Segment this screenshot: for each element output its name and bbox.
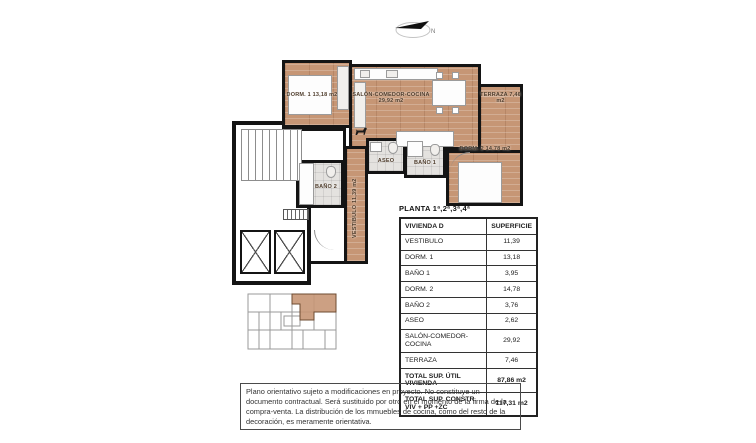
table-row: DORM. 113,18 (400, 250, 537, 266)
label-aseo: ASEO (368, 158, 404, 164)
room-name: VESTIBULO (400, 234, 487, 250)
surface-value: 14,78 (487, 282, 537, 298)
vent-grill (283, 209, 309, 220)
key-plan (240, 288, 344, 356)
table-row: TERRAZA7,46 (400, 353, 537, 369)
room-name: BAÑO 2 (400, 298, 487, 314)
elevator-1 (240, 230, 271, 274)
label-dorm2: DORM. 2 14,78 m2 (450, 146, 520, 152)
toilet-bano2 (326, 166, 336, 178)
north-letter: N (431, 29, 435, 35)
label-vestibulo: VESTIBULO 11,39 m2 (352, 178, 358, 238)
table-row: BAÑO 13,95 (400, 266, 537, 282)
chair (436, 107, 443, 114)
washbasin-aseo (370, 142, 382, 152)
table-row: DORM. 214,78 (400, 282, 537, 298)
wardrobe-dorm1 (337, 66, 349, 110)
room-name: DORM. 2 (400, 282, 487, 298)
dog-icon (354, 124, 368, 136)
stairs (241, 129, 302, 181)
page: N DORM. (0, 0, 756, 443)
chair (452, 72, 459, 79)
room-name: DORM. 1 (400, 250, 487, 266)
sofa (396, 131, 454, 147)
label-bano1: BAÑO 1 (407, 160, 443, 166)
toilet-aseo (388, 142, 398, 154)
kitchen-sink (360, 70, 370, 78)
label-terraza: TERRAZA 7,46 m2 (480, 92, 521, 105)
label-bano2: BAÑO 2 (308, 184, 344, 190)
table-row: SALÓN-COMEDOR-COCINA29,92 (400, 329, 537, 353)
surface-value: 3,76 (487, 298, 537, 314)
table-row: ASEO2,62 (400, 313, 537, 329)
surface-value: 11,39 (487, 234, 537, 250)
toilet-bano1 (430, 144, 440, 156)
label-dorm1: DORM. 1 13,18 m2 (286, 92, 338, 98)
surface-value: 2,62 (487, 313, 537, 329)
room-name: ASEO (400, 313, 487, 329)
column-header-vivienda: VIVIENDA D (400, 218, 487, 234)
dining-table (432, 80, 466, 106)
table-title: PLANTA 1ª,2ª,3ª,4ª (399, 204, 539, 213)
room-name: SALÓN-COMEDOR-COCINA (400, 329, 487, 353)
table-header-row: VIVIENDA D SUPERFICIE (400, 218, 537, 234)
chair (436, 72, 443, 79)
label-salon: SALÓN-COMEDOR-COCINA 29,92 m2 (352, 92, 430, 105)
table-row: BAÑO 23,76 (400, 298, 537, 314)
kitchen-column (354, 82, 366, 128)
column-header-superficie: SUPERFICIE (487, 218, 537, 234)
table-row: VESTIBULO11,39 (400, 234, 537, 250)
elevator-2 (274, 230, 305, 274)
kitchen-hob (386, 70, 398, 78)
room-name: TERRAZA (400, 353, 487, 369)
shower-bano1 (407, 141, 423, 157)
surface-value: 13,18 (487, 250, 537, 266)
surface-value: 29,92 (487, 329, 537, 353)
north-compass-icon: N (392, 13, 440, 45)
disclaimer-box: Plano orientativo sujeto a modificacione… (240, 383, 521, 430)
surface-value: 7,46 (487, 353, 537, 369)
room-name: BAÑO 1 (400, 266, 487, 282)
chair (452, 107, 459, 114)
surface-value: 3,95 (487, 266, 537, 282)
